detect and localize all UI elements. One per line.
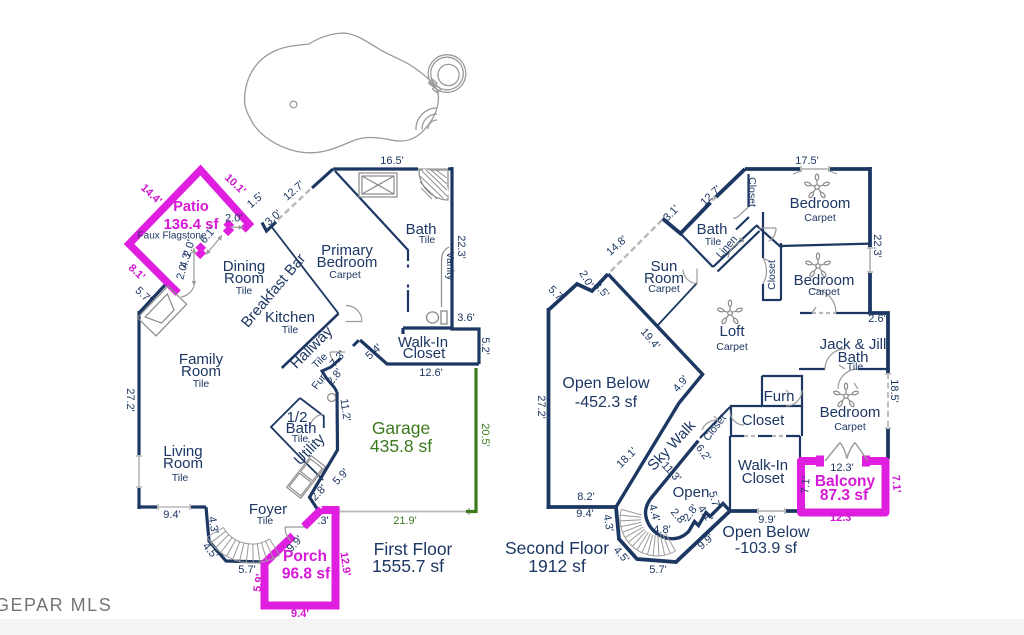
svg-text:Closet: Closet bbox=[742, 412, 785, 429]
svg-text:22.3': 22.3' bbox=[455, 235, 467, 259]
svg-text:435.8 sf: 435.8 sf bbox=[370, 436, 432, 456]
svg-text:.3': .3' bbox=[317, 515, 328, 527]
svg-text:Vanity: Vanity bbox=[444, 252, 456, 281]
svg-text:Bedroom: Bedroom bbox=[790, 195, 851, 212]
svg-text:18.5': 18.5' bbox=[888, 379, 900, 403]
svg-text:Open: Open bbox=[673, 484, 710, 501]
svg-text:3.6': 3.6' bbox=[457, 312, 474, 324]
svg-text:17.5': 17.5' bbox=[795, 155, 819, 167]
svg-text:12.6': 12.6' bbox=[419, 367, 443, 379]
svg-text:Closet: Closet bbox=[742, 470, 785, 487]
svg-text:4.8': 4.8' bbox=[653, 524, 670, 536]
svg-text:Tile: Tile bbox=[236, 285, 253, 297]
svg-text:Carpet: Carpet bbox=[804, 212, 836, 224]
svg-text:5.7': 5.7' bbox=[238, 564, 255, 576]
svg-text:Tile: Tile bbox=[257, 515, 274, 527]
svg-text:Second Floor: Second Floor bbox=[505, 538, 609, 558]
svg-text:5.7': 5.7' bbox=[649, 564, 666, 576]
svg-text:Carpet: Carpet bbox=[834, 421, 866, 433]
svg-text:5.2': 5.2' bbox=[479, 337, 491, 354]
svg-text:Carpet: Carpet bbox=[716, 341, 748, 353]
svg-text:Furn: Furn bbox=[764, 388, 795, 405]
svg-text:Closet: Closet bbox=[746, 177, 758, 207]
svg-text:8.2': 8.2' bbox=[577, 491, 594, 503]
svg-text:Carpet: Carpet bbox=[808, 286, 840, 298]
svg-text:Tile: Tile bbox=[847, 361, 864, 373]
svg-text:9.4': 9.4' bbox=[163, 509, 180, 521]
svg-text:2.0': 2.0' bbox=[225, 212, 242, 224]
svg-text:1555.7 sf: 1555.7 sf bbox=[372, 556, 444, 576]
svg-text:7.1': 7.1' bbox=[889, 475, 903, 494]
svg-text:GEPAR MLS: GEPAR MLS bbox=[0, 595, 112, 615]
svg-text:9.4': 9.4' bbox=[291, 608, 309, 620]
svg-text:1912 sf: 1912 sf bbox=[528, 556, 586, 576]
svg-text:27.2': 27.2' bbox=[124, 388, 136, 412]
svg-text:12.3': 12.3' bbox=[830, 462, 854, 474]
svg-text:Room: Room bbox=[163, 455, 203, 472]
svg-text:12.3': 12.3' bbox=[830, 512, 854, 524]
svg-text:27.2': 27.2' bbox=[535, 395, 547, 419]
svg-text:Patio: Patio bbox=[173, 199, 209, 215]
svg-text:Closet: Closet bbox=[403, 345, 446, 362]
svg-text:7.1': 7.1' bbox=[799, 476, 812, 494]
svg-text:9.4': 9.4' bbox=[576, 508, 593, 520]
svg-text:9.9': 9.9' bbox=[758, 514, 775, 526]
svg-text:16.5': 16.5' bbox=[380, 155, 404, 167]
svg-text:-103.9 sf: -103.9 sf bbox=[735, 540, 798, 557]
svg-text:Open Below: Open Below bbox=[562, 375, 650, 392]
svg-text:Loft: Loft bbox=[719, 323, 745, 340]
svg-text:Bedroom: Bedroom bbox=[820, 404, 881, 421]
svg-text:22.3': 22.3' bbox=[871, 234, 883, 258]
svg-text:Tile: Tile bbox=[282, 324, 299, 336]
svg-text:21.9': 21.9' bbox=[393, 515, 417, 527]
svg-text:-452.3 sf: -452.3 sf bbox=[575, 394, 638, 411]
svg-text:87.3 sf: 87.3 sf bbox=[820, 487, 869, 504]
svg-text:Faux Flagstone: Faux Flagstone bbox=[138, 231, 207, 242]
svg-text:2.6': 2.6' bbox=[868, 313, 885, 325]
svg-text:96.8 sf: 96.8 sf bbox=[282, 566, 331, 583]
svg-text:Garage: Garage bbox=[372, 418, 430, 438]
svg-text:20.5': 20.5' bbox=[479, 423, 491, 447]
svg-text:Open Below: Open Below bbox=[722, 524, 810, 541]
svg-text:Tile: Tile bbox=[419, 234, 436, 246]
svg-text:Carpet: Carpet bbox=[648, 283, 680, 295]
svg-text:Tile: Tile bbox=[172, 472, 189, 484]
svg-text:Closet: Closet bbox=[766, 260, 778, 290]
svg-text:Tile: Tile bbox=[193, 378, 210, 390]
svg-text:Carpet: Carpet bbox=[329, 269, 361, 281]
